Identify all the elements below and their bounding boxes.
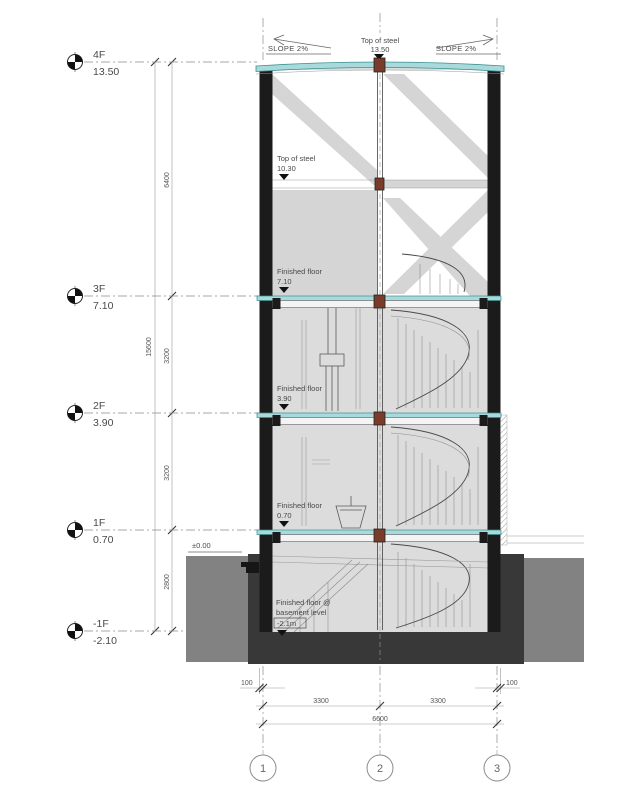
- beam-band-1030: [383, 180, 488, 188]
- grid-bubble-3-label: 3: [494, 763, 500, 775]
- note-ff3-label: Finished floor: [277, 267, 323, 276]
- steel-node-2f: [374, 412, 385, 425]
- grid-bubble-2-label: 2: [377, 763, 383, 775]
- building: [256, 58, 507, 660]
- wall-right-hatch: [501, 415, 508, 545]
- dim-edge-right-label: 100: [506, 680, 518, 687]
- level-name-4f: 4F: [93, 49, 105, 61]
- dim-v-3200b: 3200: [164, 465, 171, 481]
- level-marker-1f: 1F 0.70: [68, 517, 114, 546]
- slope-right-label: SLOPE 2%: [436, 44, 476, 53]
- wall-left: [260, 66, 273, 632]
- dim-bay-left-label: 3300: [313, 698, 329, 705]
- level-name-1f: 1F: [93, 517, 105, 529]
- note-steel-label: Top of steel: [277, 154, 316, 163]
- top-of-steel-roof-label: Top of steel: [361, 36, 400, 45]
- note-ffb-value: -2.1m: [277, 619, 296, 628]
- floor-2f: [257, 412, 501, 426]
- floor-3f: [257, 295, 501, 309]
- note-ff2-label: Finished floor: [277, 384, 323, 393]
- architectural-section-drawing: Top of steel 13.50 SLOPE 2% SLOPE 2% 156…: [0, 0, 640, 789]
- dim-edge-right: 100: [475, 680, 520, 692]
- grid-bubble-1-label: 1: [260, 763, 266, 775]
- dim-v-6400: 6400: [164, 172, 171, 188]
- note-ff3-value: 7.10: [277, 277, 292, 286]
- level-elev-2f: 3.90: [93, 417, 114, 429]
- dim-edge-left: 100: [240, 680, 285, 692]
- note-ff1-label: Finished floor: [277, 501, 323, 510]
- level-elev-1f: 0.70: [93, 534, 114, 546]
- wall-right: [488, 66, 501, 632]
- roof-annotations: Top of steel 13.50 SLOPE 2% SLOPE 2%: [266, 35, 501, 60]
- level-elev-4f: 13.50: [93, 66, 119, 78]
- steel-node-1030: [375, 178, 384, 190]
- level-name-2f: 2F: [93, 400, 105, 412]
- level-marker-4f: 4F 13.50: [68, 49, 120, 78]
- dim-overall-vertical: 15600: [146, 337, 153, 357]
- ground-level-callout: ±0.00: [188, 541, 242, 552]
- dim-edge-left-label: 100: [241, 680, 253, 687]
- slope-left-label: SLOPE 2%: [268, 44, 308, 53]
- note-steel-value: 10.30: [277, 164, 296, 173]
- floor-1f: [257, 529, 501, 543]
- note-ffb-line2: basement level: [276, 608, 327, 617]
- level-elev-3f: 7.10: [93, 300, 114, 312]
- dim-overall-horizontal: 6600: [256, 716, 504, 728]
- entry-step-lower: [246, 567, 259, 573]
- level-marker-2f: 2F 3.90: [68, 400, 114, 429]
- note-ffb-line1: Finished floor @: [276, 598, 331, 607]
- level-name-b1f: -1F: [93, 618, 109, 630]
- level-marker-b1f: -1F -2.10: [68, 618, 118, 647]
- bottom-dimensions: 100 100 3300 3300 6600: [240, 666, 520, 750]
- level-markers: 4F 13.50 3F 7.10 2F 3.90 1F 0: [68, 49, 120, 647]
- top-of-steel-roof-value: 13.50: [371, 45, 390, 54]
- note-ff2-value: 3.90: [277, 394, 292, 403]
- dim-v-3200a: 3200: [164, 348, 171, 364]
- vertical-dimension-chain: 15600 6400 3200 3200 2800: [146, 58, 176, 635]
- slope-left-callout: SLOPE 2%: [266, 35, 331, 54]
- ground-level-label: ±0.00: [192, 541, 211, 550]
- steel-node-roof: [374, 58, 385, 72]
- slope-right-callout: SLOPE 2%: [436, 35, 501, 54]
- level-name-3f: 3F: [93, 283, 105, 295]
- level-elev-b1f: -2.10: [93, 635, 117, 647]
- dim-v-2800: 2800: [164, 574, 171, 590]
- steel-node-3f: [374, 295, 385, 308]
- grid-bubbles: 1 2 3: [250, 750, 510, 781]
- dim-bay-right-label: 3300: [430, 698, 446, 705]
- note-ff1-value: 0.70: [277, 511, 292, 520]
- entry-step: [241, 562, 259, 567]
- dim-overall-horizontal-label: 6600: [372, 716, 388, 723]
- earth-left: [186, 556, 250, 662]
- section-svg: Top of steel 13.50 SLOPE 2% SLOPE 2% 156…: [0, 0, 640, 789]
- steel-node-1f: [374, 529, 385, 542]
- level-marker-3f: 3F 7.10: [68, 283, 114, 312]
